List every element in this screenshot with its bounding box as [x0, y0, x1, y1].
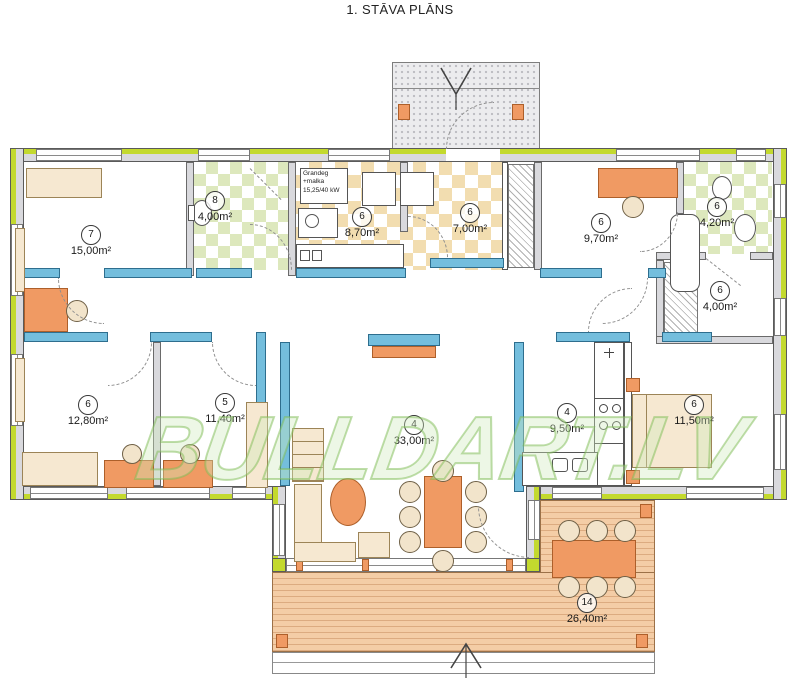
- chair: [558, 520, 580, 542]
- room-area: 12,80m²: [43, 415, 133, 427]
- wall-corner: [272, 558, 286, 572]
- room-area: 4,20m²: [672, 217, 762, 229]
- floor-plan: 1. STĀVA PLĀNS: [0, 0, 800, 681]
- wall-partition: [750, 252, 773, 260]
- room-area: 15,00m²: [46, 245, 136, 257]
- washer: [362, 172, 396, 206]
- porch-post: [398, 104, 410, 120]
- room-number: 6: [684, 395, 704, 415]
- boiler-note-line: 15,25/40 kW: [303, 187, 345, 195]
- room-label: 511,40m²: [180, 392, 270, 425]
- entrance-arrow-icon: [438, 64, 474, 110]
- chair: [180, 444, 200, 464]
- room-number: 14: [577, 593, 597, 613]
- room-number: 6: [460, 203, 480, 223]
- room-label: 69,70m²: [556, 212, 646, 245]
- terrace-table: [552, 540, 636, 578]
- boiler-note-line: Grandeg: [303, 170, 345, 178]
- burner: [612, 404, 621, 413]
- wall-partition-blue: [280, 342, 290, 486]
- room-label: 64,20m²: [672, 196, 762, 229]
- window: [774, 298, 786, 336]
- window-sill: [15, 358, 25, 422]
- desk: [598, 168, 678, 198]
- wall-partition-blue: [196, 268, 252, 278]
- entrance-door-opening: [446, 149, 500, 161]
- window: [774, 184, 786, 218]
- room-area: 7,00m²: [425, 223, 515, 235]
- room-area: 9,50m²: [522, 423, 612, 435]
- cabinet: [26, 168, 102, 198]
- window: [30, 487, 108, 499]
- wall-partition-blue: [150, 332, 212, 342]
- sink: [552, 458, 568, 472]
- wall-partition: [534, 162, 542, 270]
- porch-post: [512, 104, 524, 120]
- burner: [612, 421, 621, 430]
- side-table: [358, 532, 390, 558]
- wall-partition-blue: [24, 332, 108, 342]
- room-number: 6: [710, 281, 730, 301]
- wall-partition-blue: [556, 332, 630, 342]
- window: [552, 487, 602, 499]
- chair: [432, 460, 454, 482]
- wall-corner: [526, 558, 540, 572]
- wall-partition-blue: [24, 268, 60, 278]
- room-label: 84,00m²: [170, 190, 260, 223]
- room-label: 433,00m²: [369, 414, 459, 447]
- window: [36, 149, 122, 161]
- boiler-note-line: +malka: [303, 178, 345, 186]
- window: [328, 149, 390, 161]
- nightstand: [626, 470, 640, 484]
- chair: [122, 444, 142, 464]
- window-sill: [15, 228, 25, 292]
- window-mullion: [506, 559, 513, 571]
- room-number: 5: [215, 393, 235, 413]
- sofa: [294, 542, 356, 562]
- room-number: 6: [352, 207, 372, 227]
- terrace-post: [636, 634, 648, 648]
- room-label: 611,50m²: [649, 394, 739, 427]
- window: [232, 487, 266, 499]
- wall-partition: [624, 342, 632, 486]
- room-area: 11,50m²: [649, 415, 739, 427]
- wall-partition-blue: [662, 332, 712, 342]
- wall-partition-blue: [430, 258, 504, 268]
- sofa: [294, 484, 322, 544]
- boiler-note: Grandeg +malka 15,25/40 kW: [300, 168, 348, 204]
- room-area: 4,00m²: [170, 211, 260, 223]
- window: [616, 149, 700, 161]
- room-number: 6: [591, 213, 611, 233]
- dining-table: [424, 476, 462, 548]
- chair: [465, 531, 487, 553]
- bed-pillow-line: [646, 394, 647, 468]
- wall-partition-blue: [648, 268, 666, 278]
- window: [273, 504, 285, 556]
- chair: [399, 506, 421, 528]
- wall-partition-blue: [540, 268, 602, 278]
- sideboard: [372, 346, 436, 358]
- coffee-table: [330, 478, 366, 526]
- shelving: [292, 428, 324, 482]
- wall-exterior-left: [10, 148, 24, 500]
- room-label: 1426,40m²: [542, 592, 632, 625]
- terrace-post: [640, 504, 652, 518]
- room-number: 8: [205, 191, 225, 211]
- window: [774, 414, 786, 470]
- nightstand: [626, 378, 640, 392]
- room-number: 7: [81, 225, 101, 245]
- window: [736, 149, 766, 161]
- chair: [586, 520, 608, 542]
- wall-partition: [153, 342, 161, 486]
- chair: [432, 550, 454, 572]
- wall-partition-blue: [104, 268, 192, 278]
- sink: [572, 458, 588, 472]
- window-mullion: [362, 559, 369, 571]
- chair: [614, 520, 636, 542]
- room-area: 26,40m²: [542, 613, 632, 625]
- chair: [399, 481, 421, 503]
- room-label: 715,00m²: [46, 224, 136, 257]
- window: [686, 487, 764, 499]
- wall-partition-blue: [368, 334, 440, 346]
- room-area: 4,00m²: [675, 301, 765, 313]
- chair: [465, 481, 487, 503]
- sink: [312, 250, 322, 261]
- window: [198, 149, 250, 161]
- sink: [300, 250, 310, 261]
- chair: [399, 531, 421, 553]
- room-area: 8,70m²: [317, 227, 407, 239]
- tap-icon: [609, 348, 610, 358]
- cabinet: [22, 452, 98, 486]
- room-area: 9,70m²: [556, 233, 646, 245]
- room-label: 64,00m²: [675, 280, 765, 313]
- desk: [163, 460, 213, 488]
- room-number: 4: [557, 403, 577, 423]
- terrace-arrow-icon: [448, 638, 484, 678]
- washer: [400, 172, 434, 206]
- plan-title: 1. STĀVA PLĀNS: [0, 2, 800, 17]
- wall-partition-blue: [296, 268, 406, 278]
- desk: [104, 460, 154, 488]
- room-number: 6: [707, 197, 727, 217]
- room-label: 612,80m²: [43, 394, 133, 427]
- room-label: 49,50m²: [522, 402, 612, 435]
- room-label: 67,00m²: [425, 202, 515, 235]
- window: [126, 487, 210, 499]
- room-area: 33,00m²: [369, 435, 459, 447]
- room-number: 6: [78, 395, 98, 415]
- room-label: 68,70m²: [317, 206, 407, 239]
- terrace-post: [276, 634, 288, 648]
- room-number: 4: [404, 415, 424, 435]
- room-area: 11,40m²: [180, 413, 270, 425]
